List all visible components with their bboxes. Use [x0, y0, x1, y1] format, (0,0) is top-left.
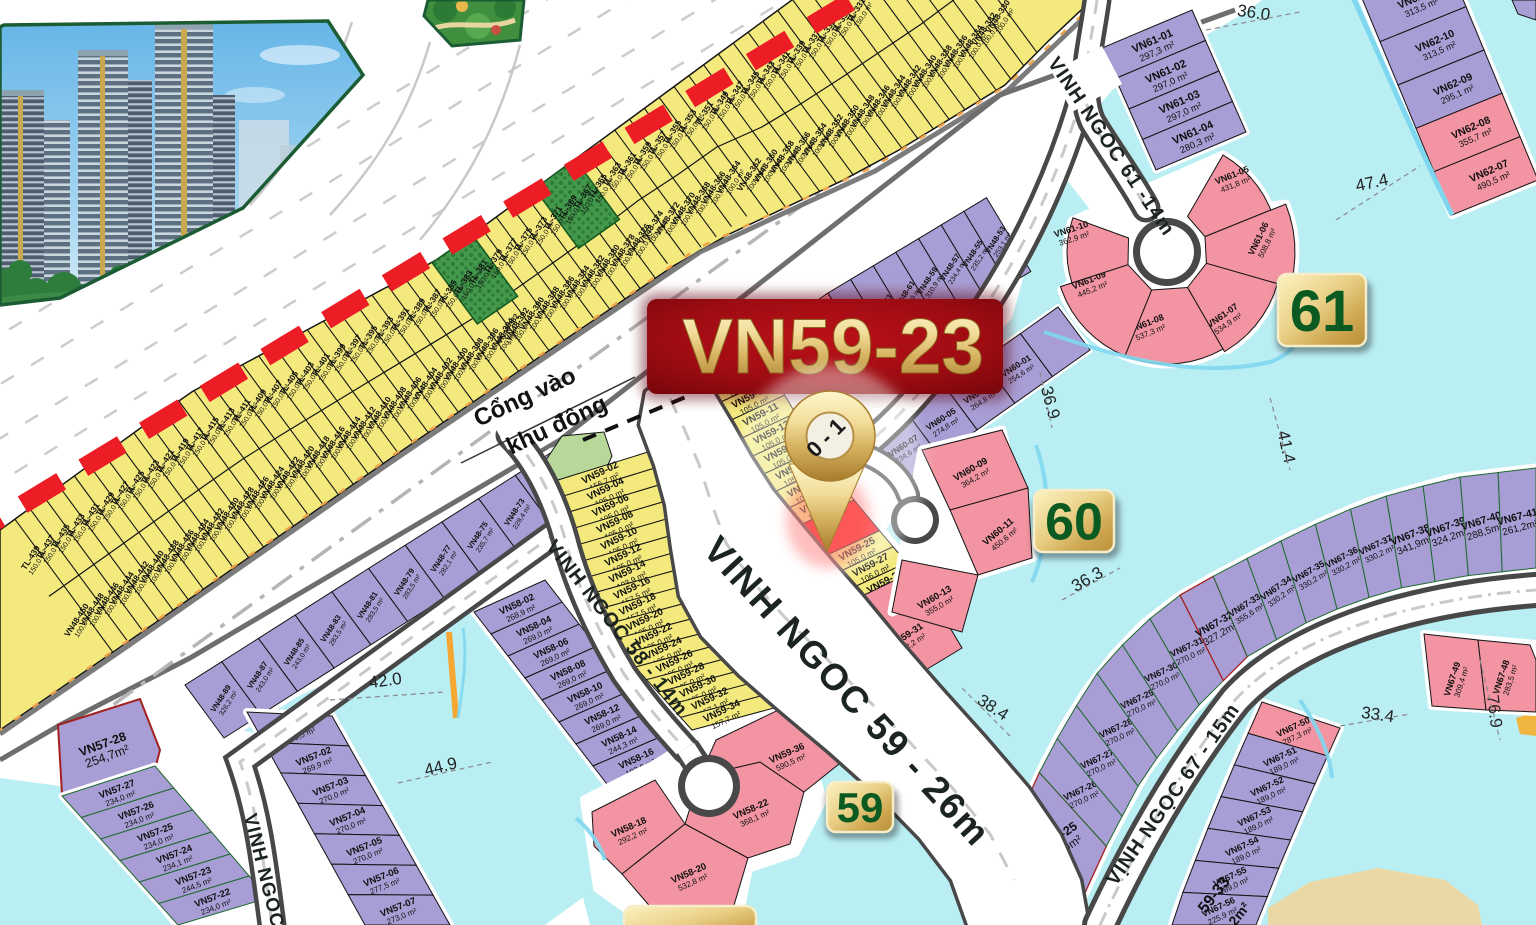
svg-text:59: 59: [837, 784, 884, 831]
svg-text:76.9: 76.9: [1483, 694, 1506, 729]
svg-text:61: 61: [1290, 279, 1355, 344]
svg-text:60: 60: [1045, 494, 1103, 552]
